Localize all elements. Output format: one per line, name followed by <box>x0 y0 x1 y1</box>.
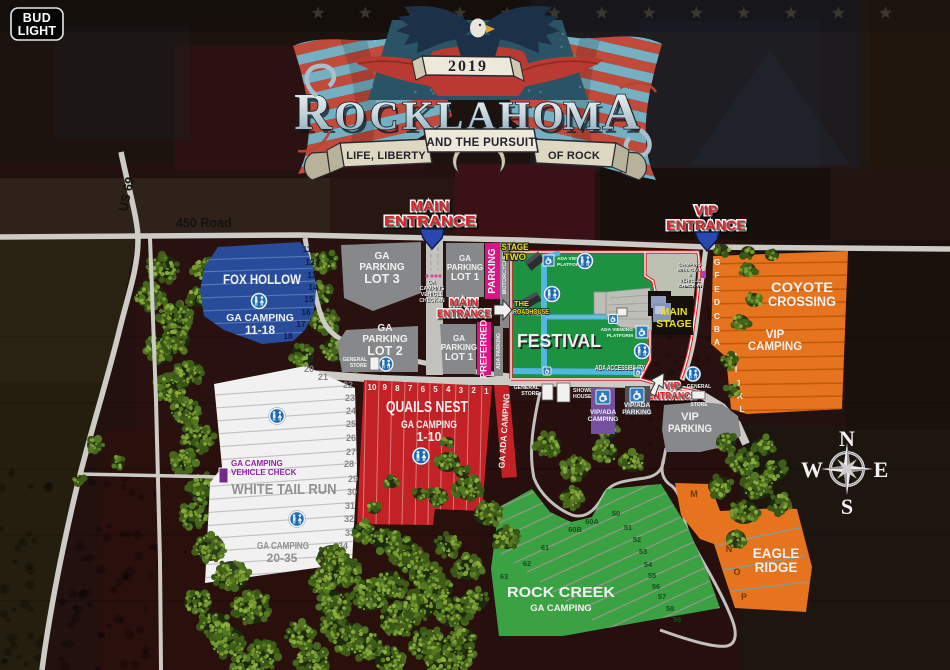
svg-text:N: N <box>839 426 855 451</box>
svg-text:2019: 2019 <box>448 58 488 75</box>
svg-text:O: O <box>334 93 365 138</box>
svg-text:M: M <box>563 93 601 138</box>
svg-text:O: O <box>532 93 563 138</box>
svg-text:OF ROCK: OF ROCK <box>548 150 600 162</box>
svg-text:A: A <box>602 84 640 141</box>
svg-text:BUD: BUD <box>23 11 52 25</box>
svg-text:C: C <box>370 93 399 138</box>
svg-text:LIGHT: LIGHT <box>18 24 57 38</box>
svg-text:LIFE, LIBERTY: LIFE, LIBERTY <box>346 150 426 162</box>
svg-text:W: W <box>801 457 823 482</box>
svg-text:AND THE PURSUIT: AND THE PURSUIT <box>426 137 535 149</box>
svg-text:E: E <box>874 457 889 482</box>
svg-text:S: S <box>841 494 853 519</box>
